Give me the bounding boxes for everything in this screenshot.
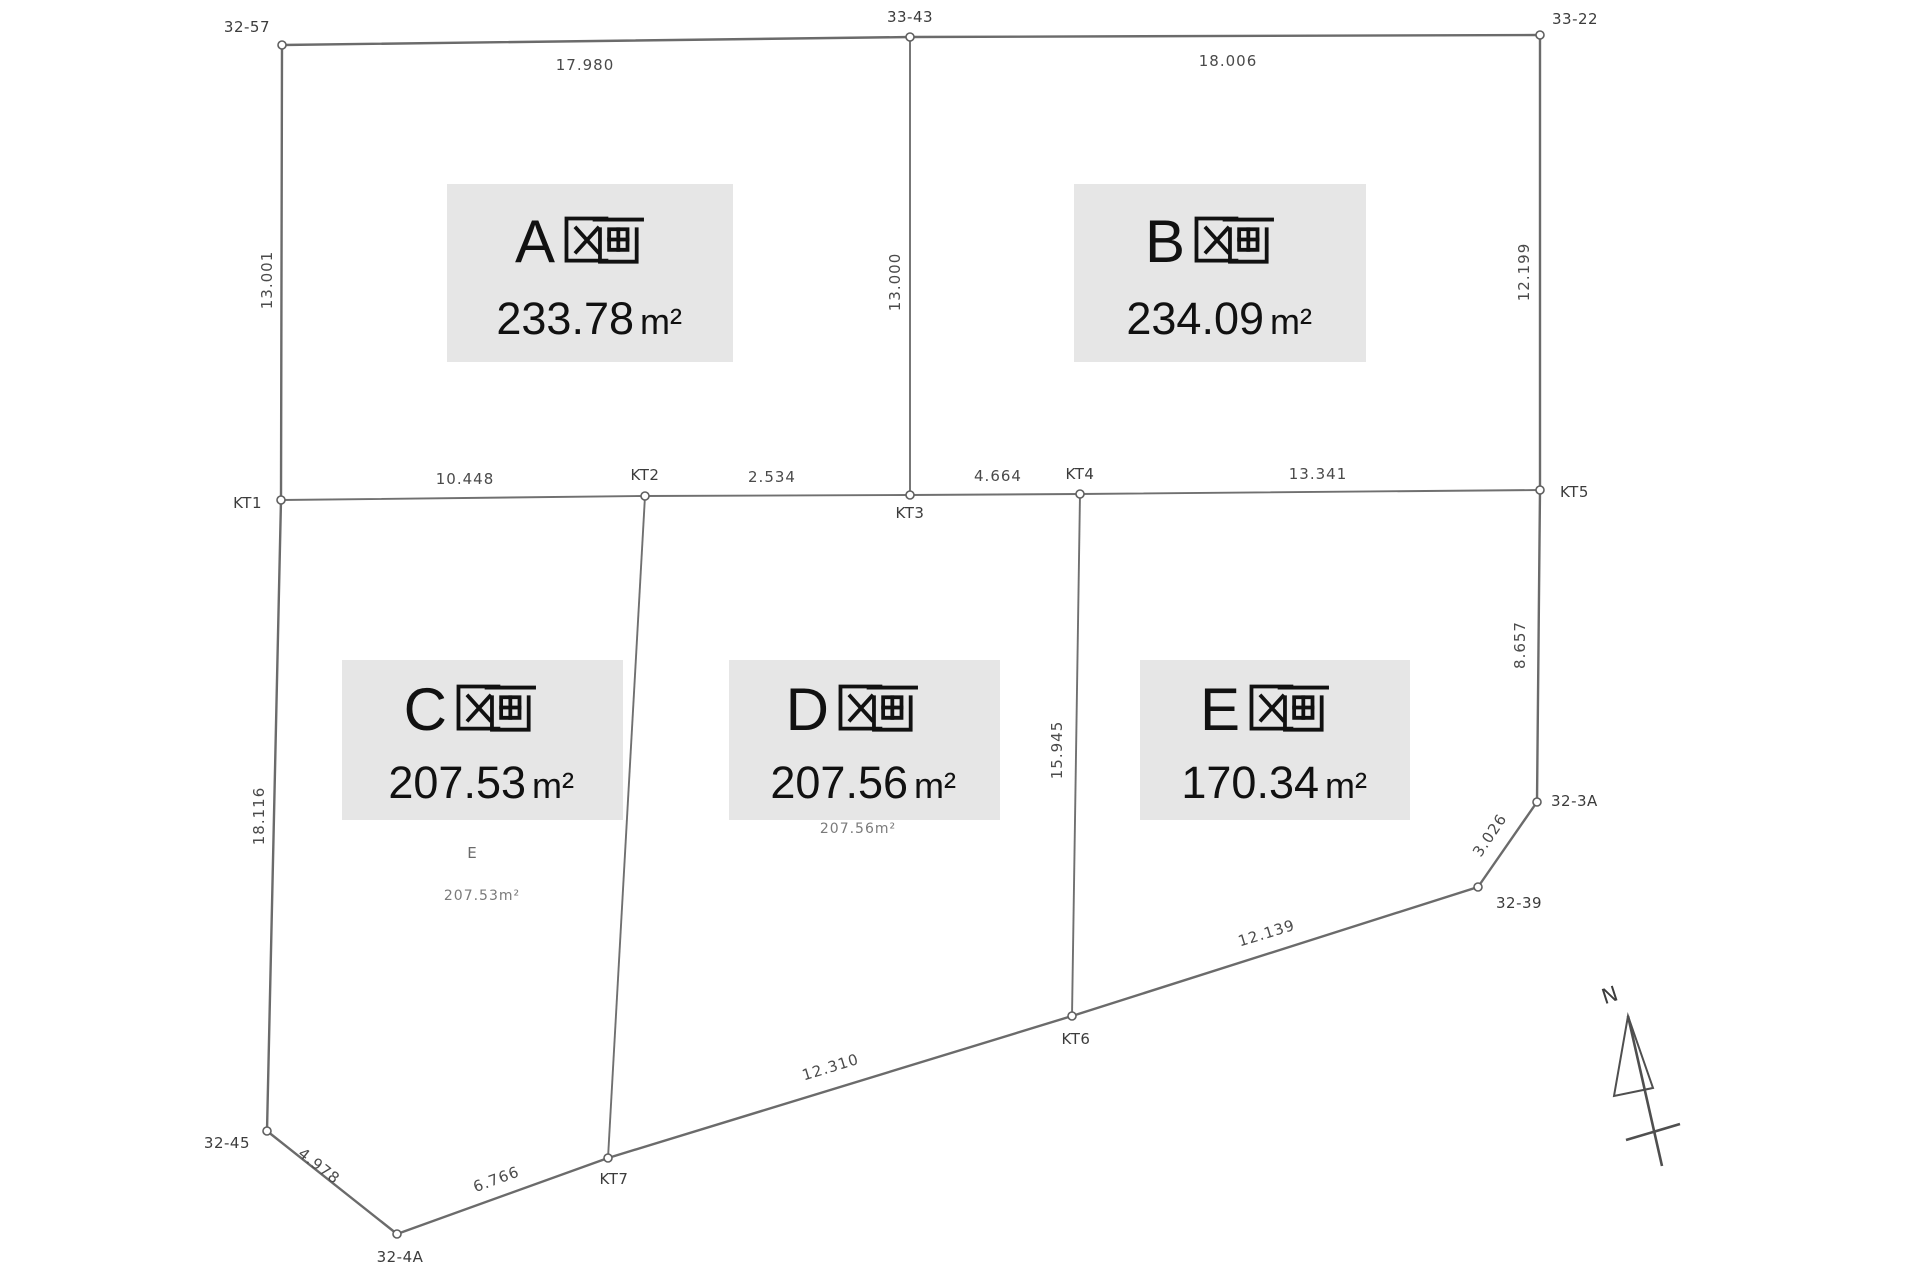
point-label-32-3a: 32-3A [1551,792,1598,810]
point-marker-kt1 [277,496,285,504]
plot-label-a: A 233.78 m² [447,184,733,362]
dividing-line-cd [608,496,645,1158]
point-marker-33-22 [1536,31,1544,39]
point-label-kt6: KT6 [1062,1030,1091,1048]
dim-kt6-kt7: 12.310 [800,1050,861,1084]
point-label-kt2: KT2 [631,466,660,484]
point-marker-kt6 [1068,1012,1076,1020]
point-label-kt1: KT1 [233,494,262,512]
dim-right-lower: 8.657 [1511,621,1529,669]
dim-kt4-kt6: 15.945 [1048,721,1066,780]
plot-letter: A [515,208,555,275]
point-label-32-45: 32-45 [204,1134,250,1152]
plot-area-value: 233.78 [496,293,634,344]
dividing-line-de [1072,494,1080,1016]
dim-left-lower: 18.116 [250,787,268,846]
dim-right-upper: 12.199 [1515,243,1533,302]
plot-label-d: D 207.56 m² [729,660,1000,820]
plot-area-value: 170.34 [1181,757,1319,808]
point-marker-32-57 [278,41,286,49]
point-marker-33-43 [906,33,914,41]
north-arrow-shaft [1628,1016,1662,1166]
point-label-kt5: KT5 [1560,483,1589,501]
plot-label-b: B 234.09 m² [1074,184,1366,362]
point-label-kt7: KT7 [600,1170,629,1188]
plot-letter: D [786,676,829,743]
faint-area-d: 207.56m² [820,821,896,837]
dim-3a-39: 3.026 [1469,810,1511,860]
point-label-33-43: 33-43 [887,8,933,26]
survey-point-labels: 32-57 33-43 33-22 KT1 KT2 KT3 KT4 KT5 KT… [204,8,1598,1266]
plot-area-unit: m² [640,301,682,342]
site-plan-page: 32-57 33-43 33-22 KT1 KT2 KT3 KT4 KT5 KT… [0,0,1920,1279]
point-label-32-39: 32-39 [1496,894,1542,912]
point-label-kt4: KT4 [1066,465,1095,483]
dim-top-left: 17.980 [556,56,615,74]
point-label-33-22: 33-22 [1552,10,1598,28]
dim-top-right: 18.006 [1199,52,1258,70]
point-label-kt3: KT3 [896,504,925,522]
plot-area-unit: m² [1325,765,1367,806]
plot-area-value: 207.56 [770,757,908,808]
plot-area-unit: m² [532,765,574,806]
plot-area-value: 207.53 [388,757,526,808]
dim-kt1-kt2: 10.448 [436,470,495,488]
plot-letter: C [404,676,447,743]
faint-annotations: E 207.53m² 207.56m² [444,821,896,904]
point-marker-kt4 [1076,490,1084,498]
point-label-32-4a: 32-4A [377,1248,424,1266]
point-marker-kt7 [604,1154,612,1162]
point-label-32-57: 32-57 [224,18,270,36]
dim-kt2-kt3: 2.534 [748,468,796,486]
plot-letter: B [1145,208,1185,275]
plot-area-unit: m² [914,765,956,806]
point-marker-kt5 [1536,486,1544,494]
dim-left-upper: 13.001 [258,251,276,310]
north-arrow-head [1614,1016,1653,1096]
dim-center-vertical: 13.000 [886,253,904,312]
dim-39-kt6: 12.139 [1236,916,1297,950]
north-label: N [1599,982,1621,1010]
point-marker-kt3 [906,491,914,499]
faint-mark-c: E [467,844,476,862]
faint-area-c: 207.53m² [444,888,520,904]
site-plan-drawing: 32-57 33-43 33-22 KT1 KT2 KT3 KT4 KT5 KT… [0,0,1920,1279]
point-marker-32-39 [1474,883,1482,891]
north-arrow: N [1599,982,1680,1166]
dim-kt3-kt4: 4.664 [974,467,1022,485]
plot-area-unit: m² [1270,301,1312,342]
plot-area-value: 234.09 [1126,293,1264,344]
point-marker-32-45 [263,1127,271,1135]
plot-label-e: E 170.34 m² [1140,660,1410,820]
dim-kt4-kt5: 13.341 [1289,465,1348,483]
point-marker-kt2 [641,492,649,500]
point-marker-32-4a [393,1230,401,1238]
plot-letter: E [1200,676,1240,743]
point-marker-32-3a [1533,798,1541,806]
plot-label-c: C 207.53 m² [342,660,623,820]
dim-45-4a: 4.978 [295,1144,344,1188]
